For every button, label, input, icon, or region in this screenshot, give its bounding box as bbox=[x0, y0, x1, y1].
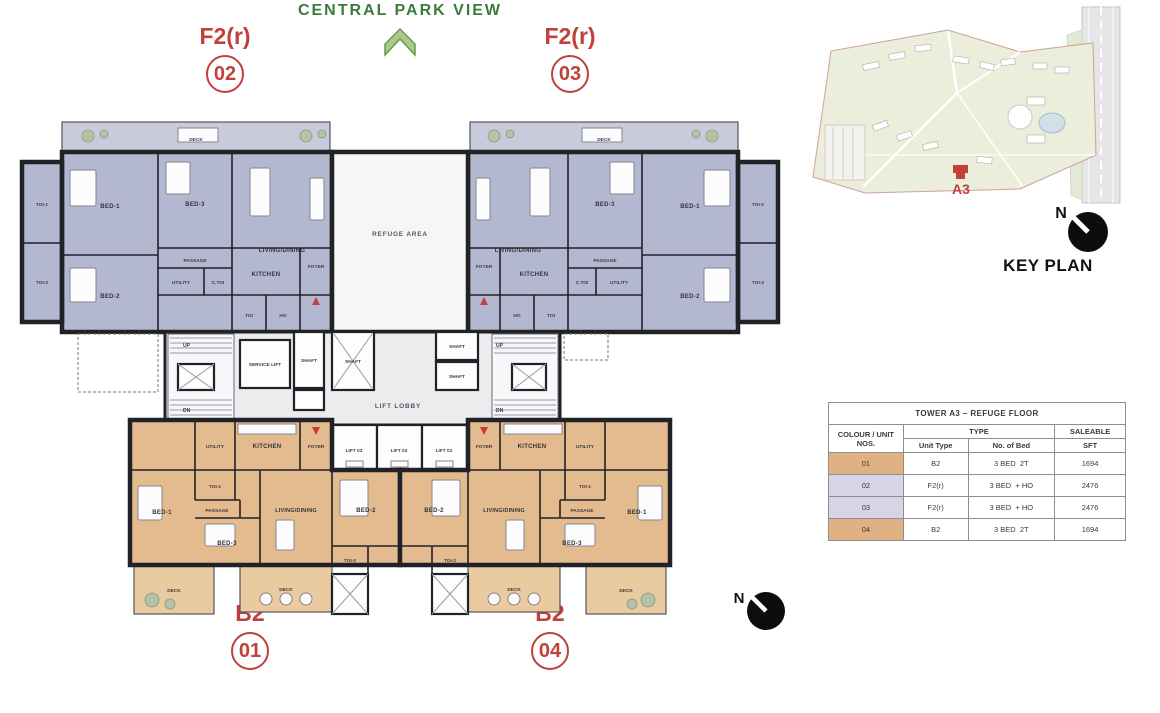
shaft-label: SHAFT bbox=[449, 374, 465, 380]
key-plan-map: A3 bbox=[813, 7, 1120, 203]
room-label-ho: HO bbox=[279, 313, 286, 319]
cell-unit-no: 04 bbox=[829, 519, 904, 541]
service-balcony bbox=[78, 334, 158, 392]
cell-unit-type: F2(r) bbox=[903, 497, 968, 519]
room-label-deck: DECK bbox=[597, 137, 611, 143]
stair-up-label: UP bbox=[183, 343, 191, 349]
core-lift-lobby: UP DN SERVICE LIFT SHAFT SHAFT SHAFT SHA… bbox=[78, 332, 608, 425]
floor-plan-page: CENTRAL PARK VIEW F2(r) 02 F2(r) 03 B2 0… bbox=[0, 0, 1160, 713]
lift-01-label: LIFT 01 bbox=[436, 448, 453, 454]
room-label-bed2: BED-2 bbox=[424, 508, 444, 514]
room-label-bed1: BED-1 bbox=[680, 204, 700, 210]
room-label-passage: PASSAGE bbox=[205, 508, 229, 514]
table-row-04: 04 B2 3 BED 2T 1694 bbox=[829, 519, 1126, 541]
table-header-row: COLOUR / UNIT NOS. TYPE SALEABLE bbox=[829, 425, 1126, 439]
key-plan-title: KEY PLAN bbox=[1003, 256, 1093, 275]
room-label-ctoi: C.TOI bbox=[212, 280, 225, 286]
room-label-toi1: TOI-1 bbox=[579, 484, 592, 490]
room-label-bed3: BED-3 bbox=[595, 202, 615, 208]
room-label-kitchen: KITCHEN bbox=[520, 272, 549, 278]
col-header-colour-unit: COLOUR / UNIT NOS. bbox=[829, 425, 904, 453]
room-label-deck: DECK bbox=[167, 588, 181, 594]
cell-unit-type: F2(r) bbox=[903, 475, 968, 497]
room-label-ctoi: C.TOI bbox=[576, 280, 589, 286]
room-label-living: LIVING/DINING bbox=[495, 248, 542, 254]
col-header-type: TYPE bbox=[903, 425, 1054, 439]
room-label-ho: HO bbox=[513, 313, 520, 319]
room-label-foyer: FOYER bbox=[476, 444, 493, 450]
room-label-toi1: TOI-1 bbox=[36, 202, 49, 208]
service-lift-label: SERVICE LIFT bbox=[249, 362, 281, 368]
stair-right: UP DN bbox=[492, 334, 558, 423]
room-label-deck: DECK bbox=[507, 587, 521, 593]
room-label-foyer: FOYER bbox=[308, 264, 325, 270]
col-header-saleable: SALEABLE bbox=[1055, 425, 1126, 439]
room-label-living: LIVING/DINING bbox=[483, 508, 525, 514]
cell-sft: 1694 bbox=[1055, 453, 1126, 475]
room-label-utility: UTILITY bbox=[206, 444, 225, 450]
room-label-living: LIVING/DINING bbox=[275, 508, 317, 514]
tower-a3-marker: A3 bbox=[952, 165, 970, 197]
table-title-row: TOWER A3 – REFUGE FLOOR bbox=[829, 403, 1126, 425]
room-label-utility: UTILITY bbox=[172, 280, 191, 286]
room-label-bed3: BED-3 bbox=[185, 202, 205, 208]
room-label-toi2: TOI-2 bbox=[752, 280, 765, 286]
room-label-toi2: TOI-2 bbox=[36, 280, 49, 286]
room-label-bed1: BED-1 bbox=[627, 510, 647, 516]
col-header-sft: SFT bbox=[1055, 439, 1126, 453]
cell-unit-type: B2 bbox=[903, 519, 968, 541]
room-label-bed2: BED-2 bbox=[680, 294, 700, 300]
stair-dn-label: DN bbox=[496, 408, 504, 414]
shaft-label: SHAFT bbox=[449, 344, 465, 350]
cell-no-of-bed: 3 BED + HO bbox=[968, 475, 1055, 497]
table-row-02: 02 F2(r) 3 BED + HO 2476 bbox=[829, 475, 1126, 497]
stair-up-label: UP bbox=[496, 343, 504, 349]
service-balcony bbox=[564, 334, 608, 360]
room-label-deck: DECK bbox=[189, 137, 203, 143]
room-label-bed3: BED-3 bbox=[217, 541, 237, 547]
lift-02-label: LIFT 02 bbox=[391, 448, 408, 454]
table-row-01: 01 B2 3 BED 2T 1694 bbox=[829, 453, 1126, 475]
cell-sft: 2476 bbox=[1055, 475, 1126, 497]
stair-left: UP DN bbox=[168, 334, 234, 423]
stair-dn-label: DN bbox=[183, 408, 191, 414]
key-plan: A3 N KEY PLAN bbox=[805, 5, 1135, 275]
cell-unit-type: B2 bbox=[903, 453, 968, 475]
cell-unit-no: 02 bbox=[829, 475, 904, 497]
table-row-03: 03 F2(r) 3 BED + HO 2476 bbox=[829, 497, 1126, 519]
room-label-kitchen: KITCHEN bbox=[252, 272, 281, 278]
room-label-toi1: TOI-1 bbox=[209, 484, 222, 490]
north-compass-icon: N bbox=[734, 590, 785, 630]
room-label-bed1: BED-1 bbox=[100, 204, 120, 210]
tower-a3-label: A3 bbox=[952, 181, 970, 197]
room-label-kitchen: KITCHEN bbox=[518, 444, 547, 450]
room-label-living: LIVING/DINING bbox=[259, 248, 306, 254]
cell-sft: 1694 bbox=[1055, 519, 1126, 541]
cell-unit-no: 01 bbox=[829, 453, 904, 475]
cell-no-of-bed: 3 BED + HO bbox=[968, 497, 1055, 519]
key-plan-compass-icon: N bbox=[1055, 205, 1108, 252]
room-label-foyer: FOYER bbox=[476, 264, 493, 270]
north-label: N bbox=[734, 590, 745, 607]
shaft-label: SHAFT bbox=[301, 358, 317, 364]
room-label-bed2: BED-2 bbox=[100, 294, 120, 300]
unit-f2r-03: DECK TOI-1 TOI-2 BED-1 BED-3 bbox=[468, 122, 778, 332]
room-label-bed1: BED-1 bbox=[152, 510, 172, 516]
room-label-utility: UTILITY bbox=[576, 444, 595, 450]
area-table: TOWER A3 – REFUGE FLOOR COLOUR / UNIT NO… bbox=[828, 402, 1126, 541]
room-label-deck: DECK bbox=[279, 587, 293, 593]
table-title: TOWER A3 – REFUGE FLOOR bbox=[829, 403, 1126, 425]
room-label-passage: PASSAGE bbox=[570, 508, 594, 514]
room-label-kitchen: KITCHEN bbox=[253, 444, 282, 450]
lift-lobby-label: LIFT LOBBY bbox=[375, 403, 421, 410]
cell-no-of-bed: 3 BED 2T bbox=[968, 453, 1055, 475]
room-label-bed2: BED-2 bbox=[356, 508, 376, 514]
room-label-passage: PASSAGE bbox=[593, 258, 617, 264]
room-label-toi: TOI bbox=[245, 313, 254, 319]
room-label-refuge: REFUGE AREA bbox=[372, 231, 428, 238]
room-label-deck: DECK bbox=[619, 588, 633, 594]
refuge-area: REFUGE AREA bbox=[332, 152, 468, 332]
col-header-no-of-bed: No. of Bed bbox=[968, 439, 1055, 453]
unit-f2r-02: DECK TOI-1 TOI-2 BED-1 BED-3 bbox=[22, 122, 332, 332]
room-label-utility: UTILITY bbox=[610, 280, 629, 286]
cell-unit-no: 03 bbox=[829, 497, 904, 519]
room-label-foyer: FOYER bbox=[308, 444, 325, 450]
room-label-toi: TOI bbox=[547, 313, 556, 319]
lift-03-label: LIFT 03 bbox=[346, 448, 363, 454]
room-label-bed3: BED-3 bbox=[562, 541, 582, 547]
cell-sft: 2476 bbox=[1055, 497, 1126, 519]
room-label-toi1: TOI-1 bbox=[752, 202, 765, 208]
shaft-label: SHAFT bbox=[345, 359, 361, 365]
col-header-unit-type: Unit Type bbox=[903, 439, 968, 453]
cell-no-of-bed: 3 BED 2T bbox=[968, 519, 1055, 541]
north-label: N bbox=[1055, 205, 1067, 222]
room-label-passage: PASSAGE bbox=[183, 258, 207, 264]
